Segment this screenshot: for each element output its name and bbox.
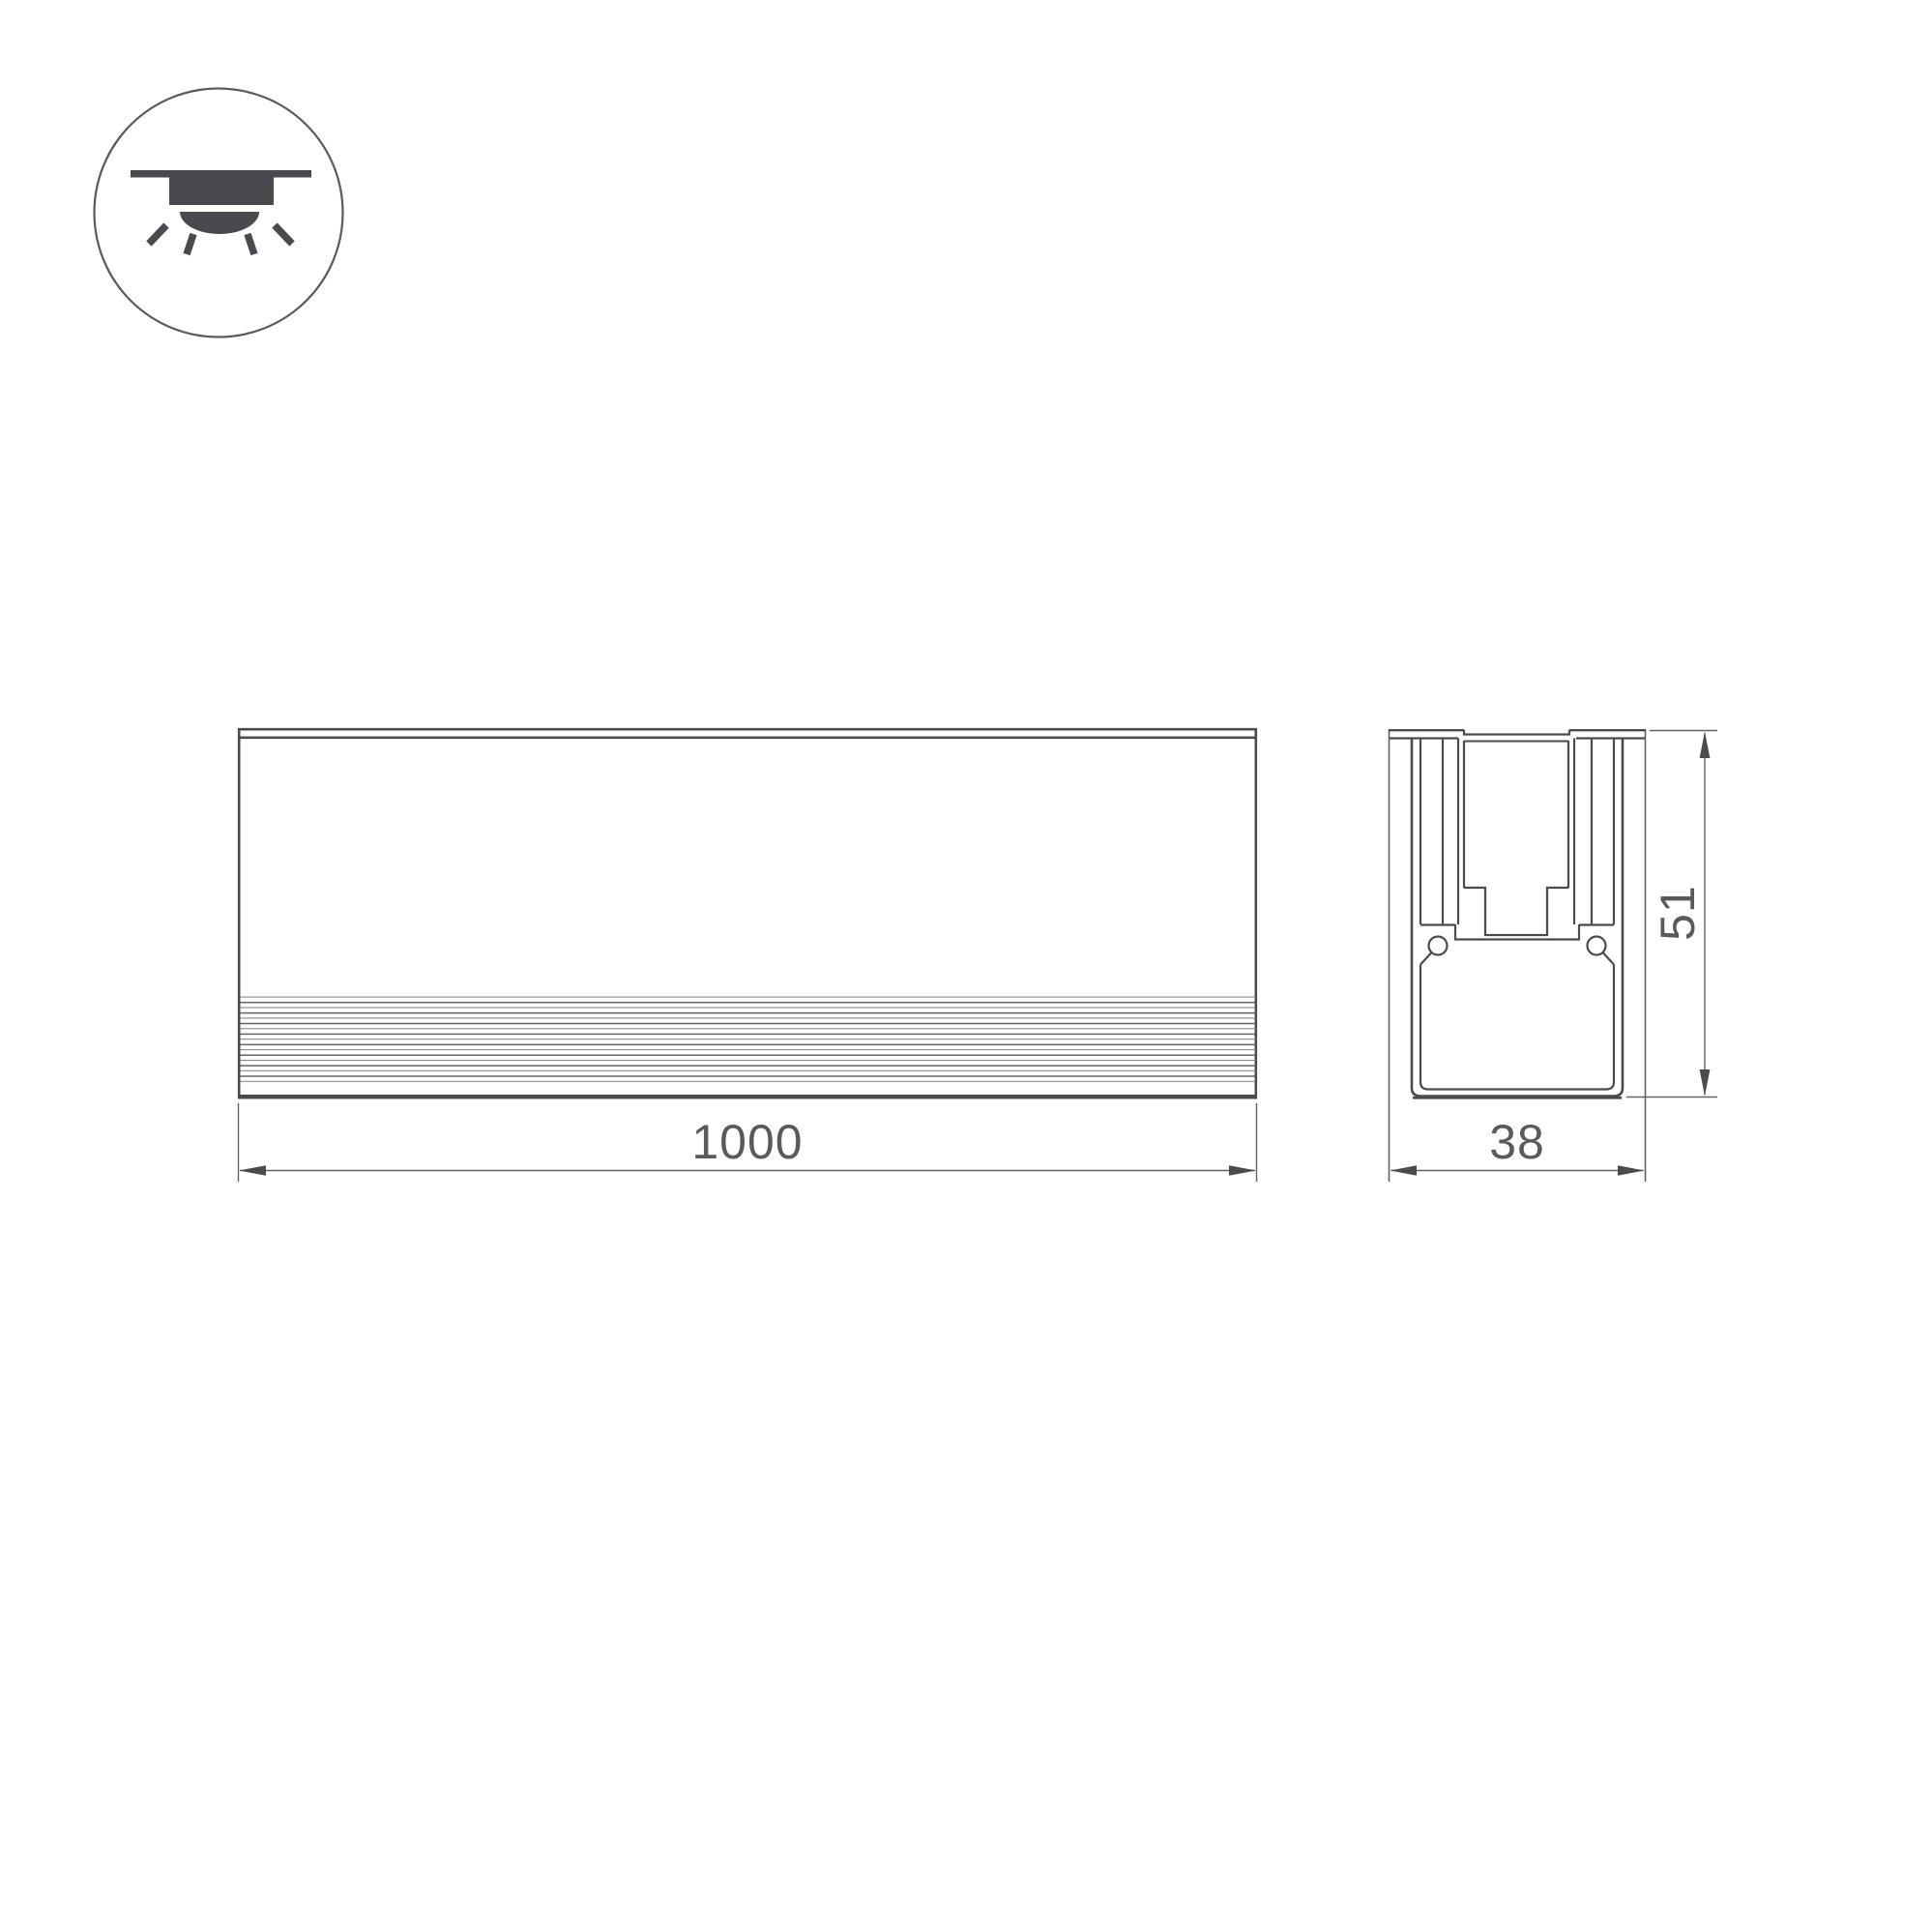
channel-stem — [1464, 888, 1568, 935]
screw-boss-right — [1588, 937, 1606, 955]
arrow-left-icon — [1390, 1165, 1418, 1176]
chamber-inner — [1420, 965, 1614, 1090]
dim-width-label: 38 — [1489, 1115, 1545, 1169]
chamfer-right — [1603, 953, 1614, 965]
chamfer-left — [1420, 953, 1431, 965]
diffuser-ribs — [241, 994, 1256, 1086]
arrow-left-icon — [239, 1165, 266, 1176]
arrow-down-icon — [1700, 1069, 1711, 1097]
arrow-right-icon — [1618, 1165, 1645, 1176]
ceiling-bar — [131, 170, 311, 178]
arrow-up-icon — [1700, 732, 1711, 759]
dim-length: 1000 — [239, 1103, 1257, 1182]
screw-boss-left — [1429, 937, 1448, 955]
dim-height-label: 51 — [1651, 885, 1705, 941]
recessed-downlight-icon — [95, 89, 343, 337]
drawing-canvas: 1000 38 51 — [0, 0, 1932, 1932]
light-dome — [180, 212, 259, 234]
section-view — [1389, 729, 1646, 1182]
technical-drawing: 1000 38 51 — [0, 0, 1932, 1932]
dim-height: 51 — [1626, 731, 1717, 1098]
cap-center-recess — [1464, 730, 1569, 735]
dim-length-label: 1000 — [691, 1115, 803, 1169]
fixture-body — [169, 177, 274, 205]
dim-width: 38 — [1390, 1115, 1645, 1176]
shelf-plate — [1455, 924, 1579, 940]
arrow-right-icon — [1229, 1165, 1256, 1176]
front-view — [238, 728, 1257, 1098]
